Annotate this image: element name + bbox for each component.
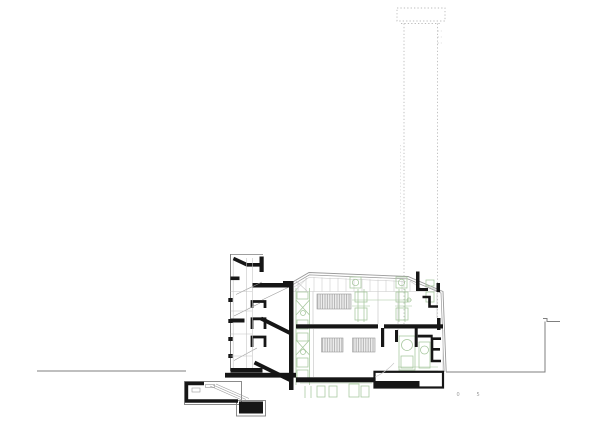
basement-plant-green [300, 383, 372, 398]
floor-slab-ground [296, 377, 375, 382]
section-drawing: 0 5 [0, 0, 600, 424]
window-mid-right [353, 338, 376, 352]
upper-floor-plant-green [350, 277, 434, 322]
basement-stair-lines [210, 384, 249, 401]
site-wall-step [543, 319, 560, 322]
basement-fixture [192, 388, 200, 392]
window-upper [317, 294, 351, 309]
scale-label-5: 5 [477, 392, 480, 398]
floor-slab-mid [296, 324, 378, 328]
services-shaft-green [296, 288, 310, 385]
sump-pit [239, 402, 263, 414]
window-mid-left [322, 338, 344, 352]
door-swing-arc [375, 363, 394, 377]
stair-tower [228, 254, 293, 381]
scale-bar: 0 5 [457, 392, 480, 398]
slab-over-basement [225, 373, 296, 378]
drawing-sheet: 0 5 [0, 0, 600, 424]
scale-label-0: 0 [457, 392, 460, 398]
building-cut-walls [283, 272, 443, 391]
windows [317, 294, 375, 352]
basement [185, 373, 297, 416]
main-building-outline [291, 273, 446, 373]
